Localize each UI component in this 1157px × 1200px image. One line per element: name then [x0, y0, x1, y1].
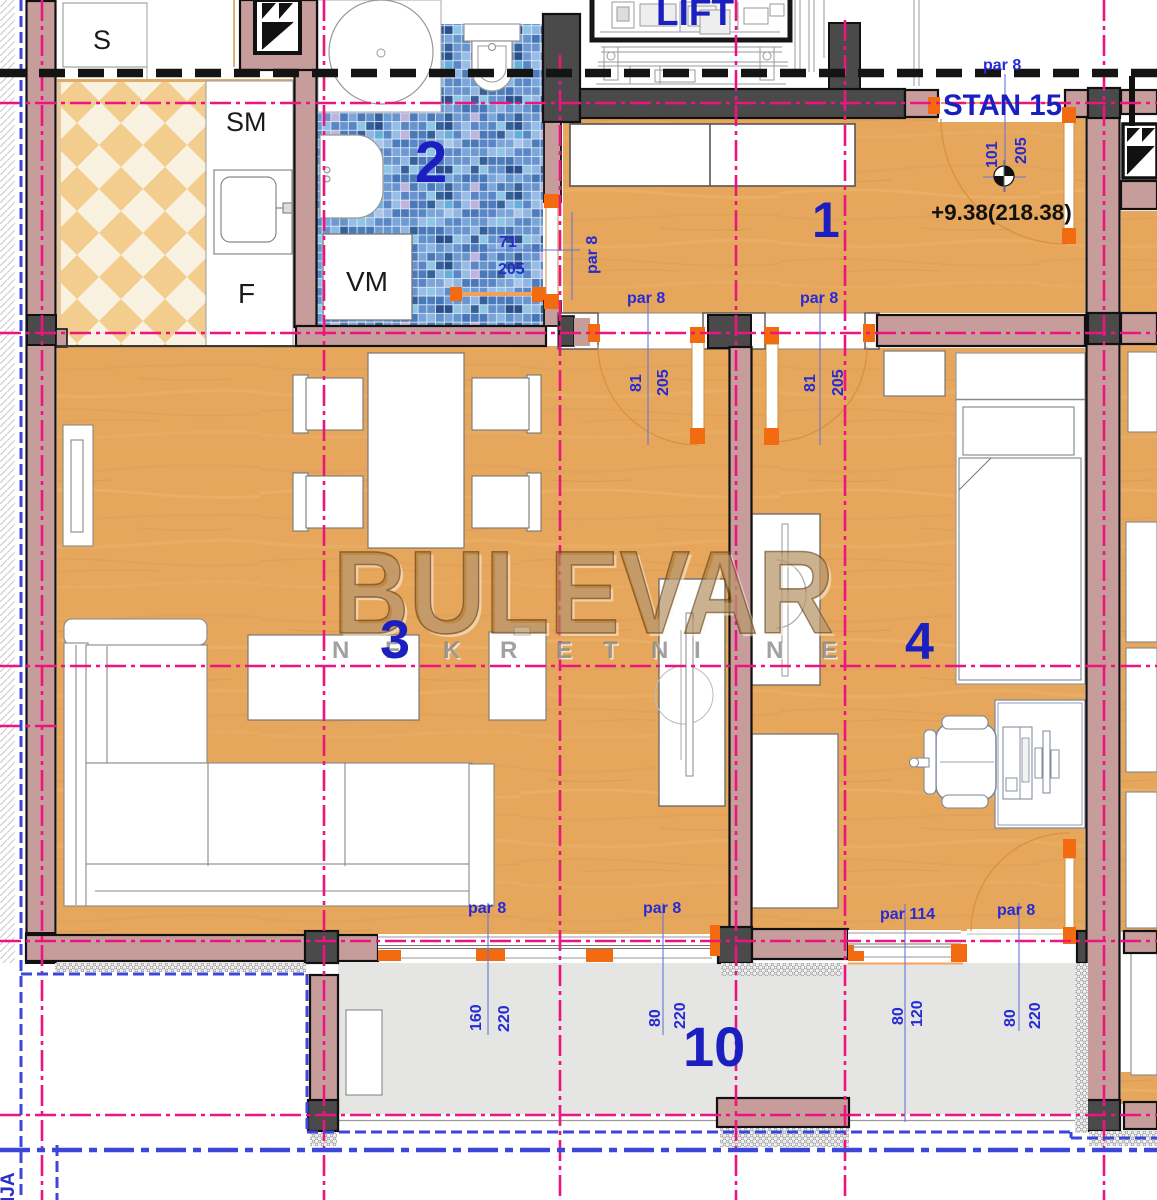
svg-text:1: 1: [812, 192, 840, 248]
svg-text:par 8: par 8: [584, 236, 601, 274]
svg-text:3: 3: [380, 610, 410, 670]
svg-text:+9.38(218.38): +9.38(218.38): [931, 200, 1072, 225]
svg-text:80: 80: [647, 1009, 664, 1027]
svg-text:K: K: [443, 637, 461, 664]
svg-text:E: E: [556, 637, 572, 664]
svg-text:120: 120: [909, 1000, 926, 1027]
svg-text:S: S: [93, 25, 111, 55]
svg-text:81: 81: [628, 374, 645, 392]
svg-text:4: 4: [905, 613, 934, 671]
svg-text:par 8: par 8: [983, 57, 1021, 74]
svg-text:VM: VM: [346, 266, 388, 297]
svg-text:par 8: par 8: [468, 900, 506, 917]
svg-text:F: F: [238, 278, 255, 309]
svg-text:205: 205: [498, 261, 525, 278]
svg-text:IJA: IJA: [0, 1172, 19, 1200]
svg-text:101: 101: [984, 141, 1001, 168]
svg-text:N: N: [766, 637, 783, 664]
svg-text:I: I: [694, 637, 701, 664]
svg-text:N: N: [651, 637, 668, 664]
svg-text:par 8: par 8: [627, 290, 665, 307]
svg-text:E: E: [821, 637, 837, 664]
svg-text:205: 205: [1013, 137, 1030, 164]
svg-text:N: N: [332, 637, 349, 664]
svg-text:205: 205: [655, 369, 672, 396]
svg-text:2: 2: [415, 130, 447, 195]
svg-text:220: 220: [1027, 1002, 1044, 1029]
svg-text:71: 71: [499, 234, 517, 251]
svg-text:par 8: par 8: [643, 900, 681, 917]
svg-text:par 8: par 8: [997, 902, 1035, 919]
svg-text:80: 80: [1002, 1009, 1019, 1027]
svg-text:SM: SM: [226, 107, 267, 137]
svg-text:LIFT: LIFT: [656, 0, 734, 33]
svg-text:81: 81: [802, 374, 819, 392]
svg-text:par 114: par 114: [880, 906, 935, 923]
svg-text:STAN 15: STAN 15: [943, 89, 1062, 122]
svg-text:220: 220: [672, 1002, 689, 1029]
svg-text:160: 160: [468, 1004, 485, 1031]
svg-text:R: R: [500, 637, 517, 664]
svg-text:220: 220: [496, 1005, 513, 1032]
svg-text:205: 205: [830, 369, 847, 396]
svg-text:10: 10: [683, 1015, 745, 1078]
svg-text:par 8: par 8: [800, 290, 838, 307]
svg-text:80: 80: [890, 1007, 907, 1025]
svg-text:T: T: [603, 637, 618, 664]
